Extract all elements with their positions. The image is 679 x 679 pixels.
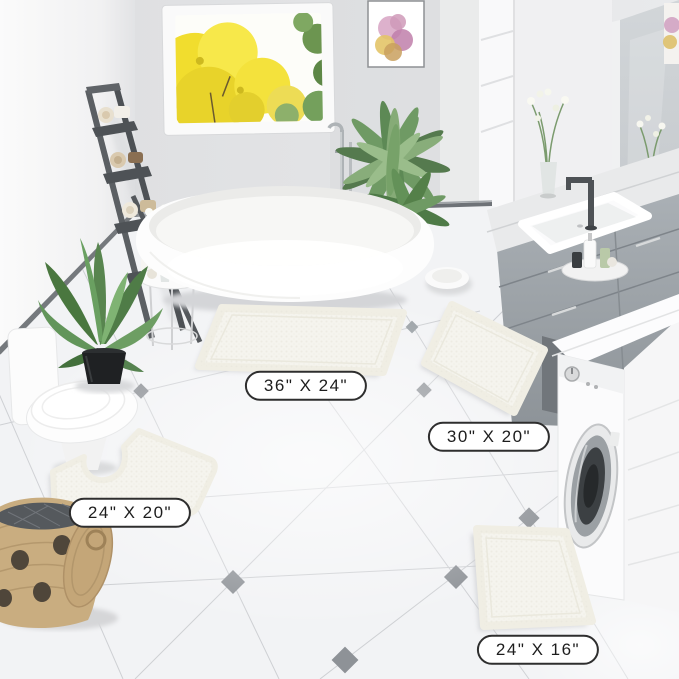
size-label-24x16: 24" X 16"	[477, 635, 599, 665]
size-label-36x24: 36" X 24"	[245, 371, 367, 401]
mirror-reflected-art	[663, 3, 679, 64]
bathroom-product-image: 36" X 24" 30" X 20" 24" X 20" 24" X 16"	[0, 0, 679, 679]
bathtub	[136, 186, 434, 313]
bathroom-scene	[0, 0, 679, 679]
rug-36x24	[194, 308, 403, 377]
size-label-30x20: 30" X 20"	[428, 422, 550, 452]
wall-art-frame	[368, 1, 424, 67]
window	[154, 2, 342, 139]
size-label-24x20: 24" X 20"	[69, 498, 191, 528]
